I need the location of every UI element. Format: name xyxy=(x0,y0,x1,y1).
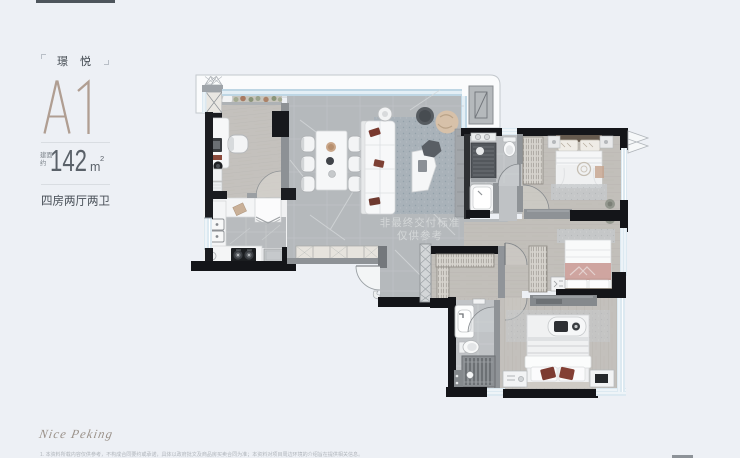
svg-text:仅供参考: 仅供参考 xyxy=(397,229,443,242)
svg-text:非最终交付标准: 非最终交付标准 xyxy=(380,216,461,229)
